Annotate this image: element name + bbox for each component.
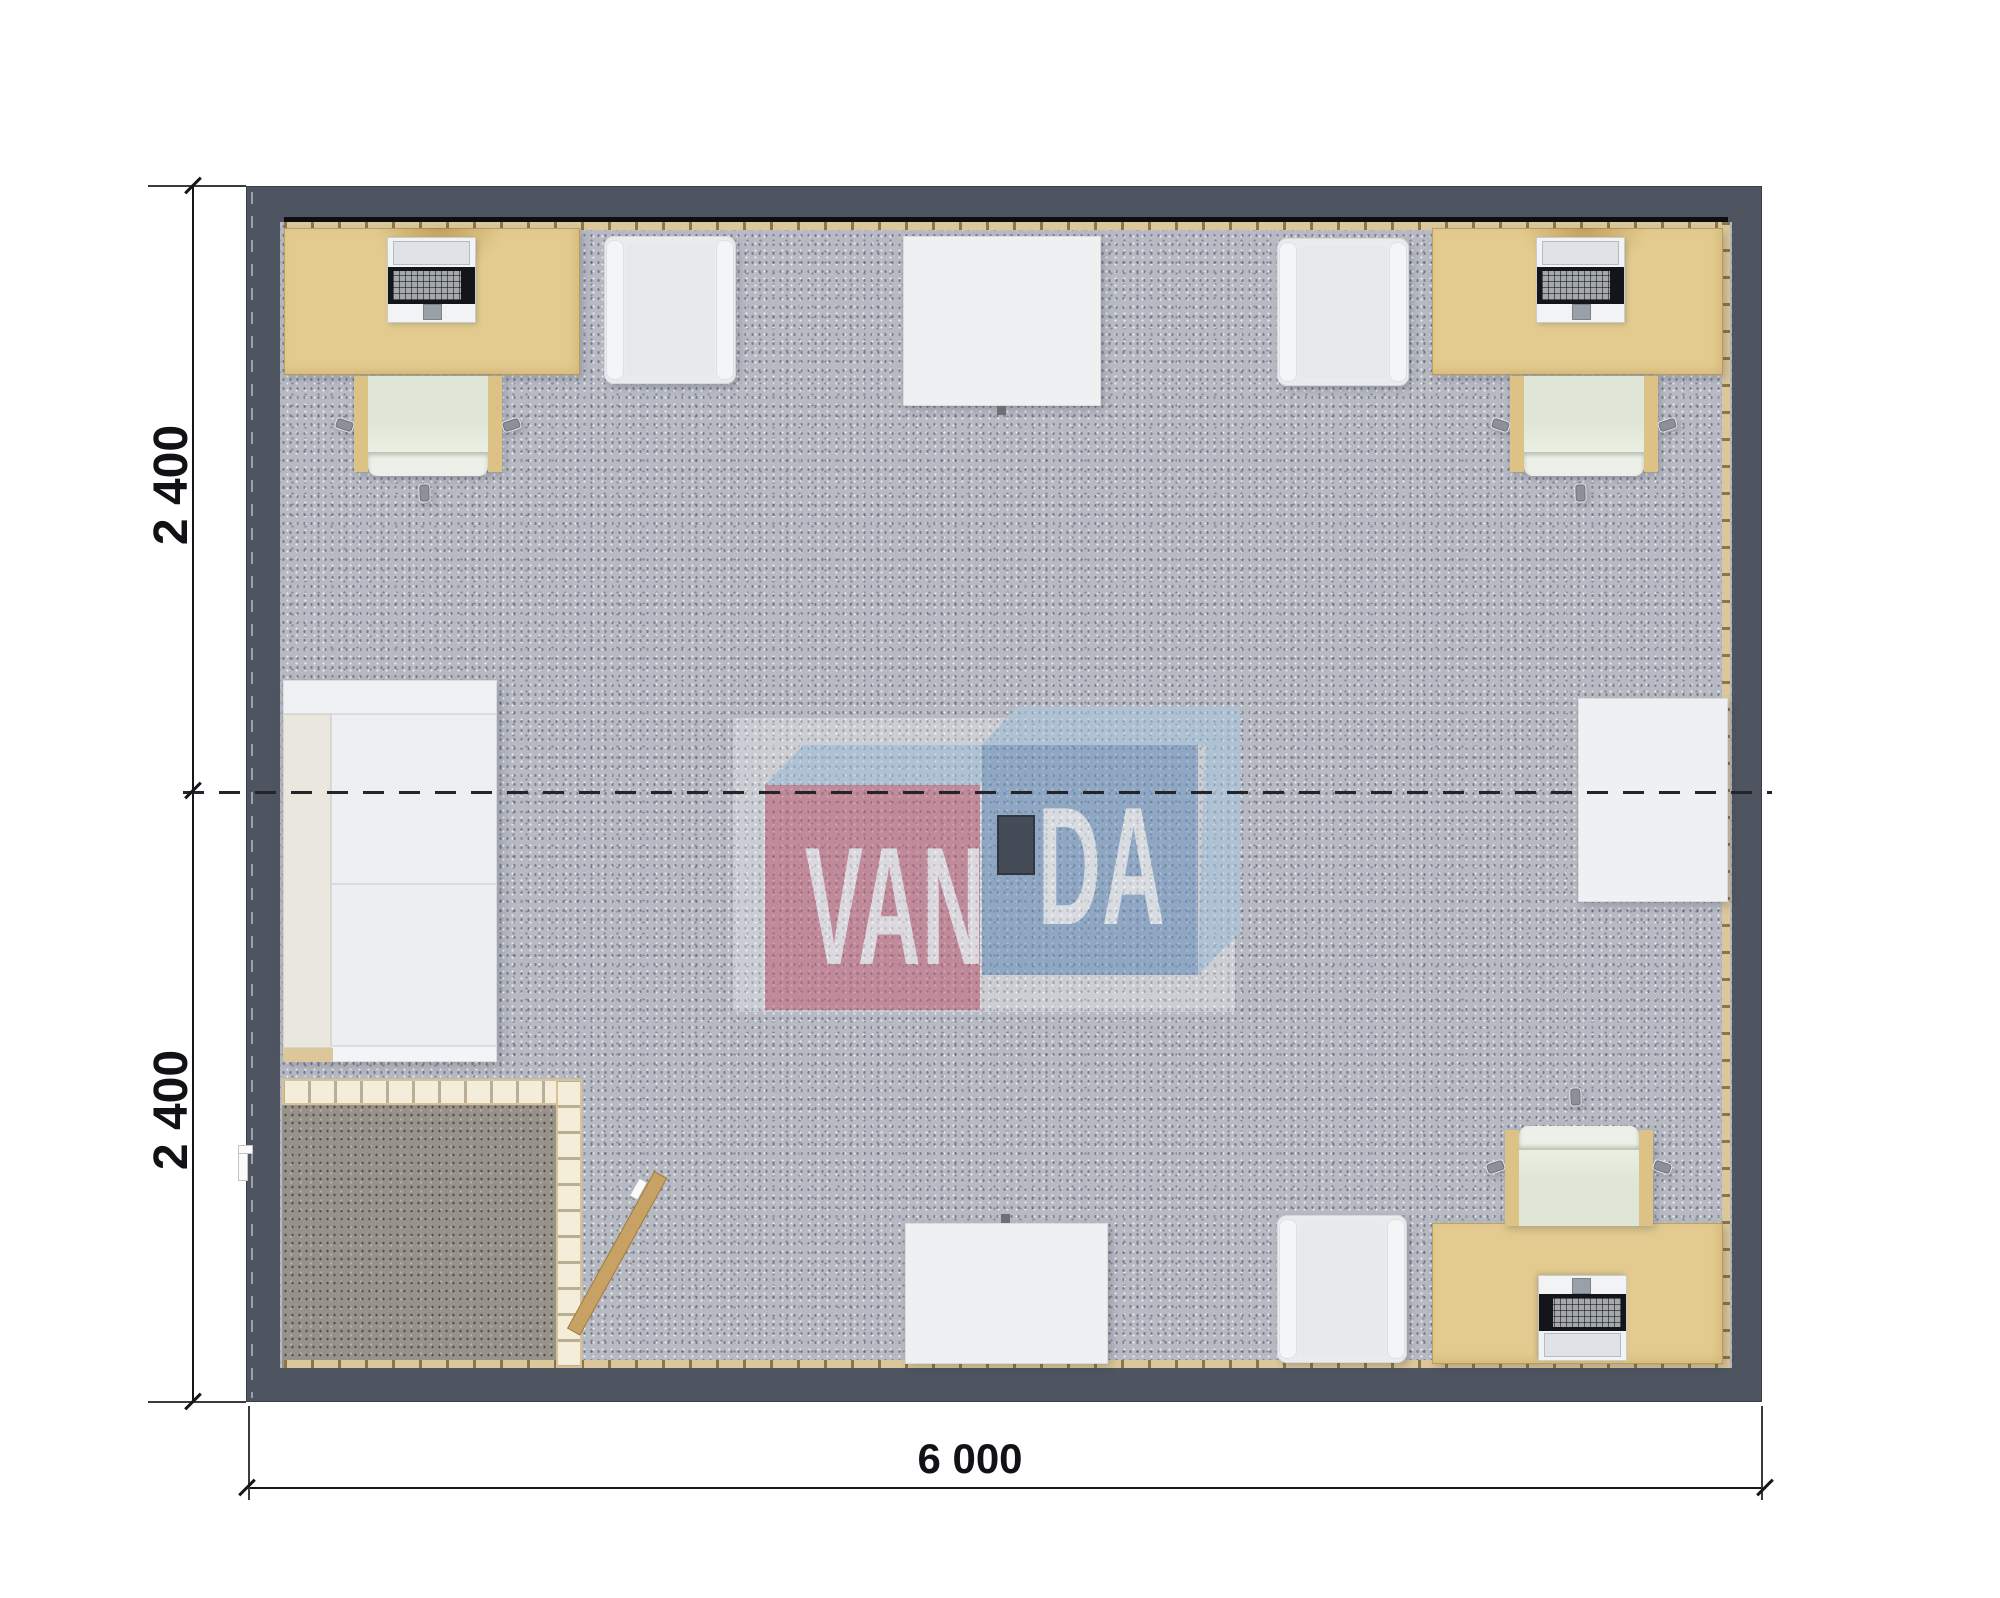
sofa-left — [283, 680, 497, 1062]
lounge-chair-bottom — [1277, 1215, 1407, 1363]
chair-seat — [1519, 1150, 1639, 1226]
module-joint-dashed-line — [183, 791, 1772, 794]
table-bottom — [905, 1223, 1108, 1364]
chair-armrest — [354, 376, 368, 472]
lounge-seat-pad — [1299, 1223, 1385, 1355]
chair-caster — [419, 484, 430, 501]
lounge-seat-pad — [1299, 246, 1387, 378]
chair-seat — [368, 376, 488, 452]
lounge-chair-top-right — [1277, 238, 1409, 386]
vestibule-carpet — [282, 1103, 556, 1368]
vestibule-partition-horizontal — [282, 1079, 578, 1105]
lounge-armrest — [1279, 1219, 1297, 1359]
entry-door-handle — [239, 1146, 247, 1180]
laptop-screen — [1544, 1333, 1621, 1357]
lounge-armrest — [1279, 242, 1297, 382]
left-dimension-line — [192, 186, 194, 1402]
chair-armrest — [1510, 376, 1524, 472]
laptop-keyboard — [1539, 1294, 1626, 1331]
laptop-top-right — [1537, 238, 1624, 322]
extension-line-top-left — [148, 185, 246, 187]
mouse — [423, 304, 442, 320]
task-chair-top-left — [352, 376, 504, 498]
sofa-front-edge — [331, 1046, 497, 1062]
sofa-cushion — [331, 714, 497, 884]
laptop-keys — [393, 271, 461, 300]
dimension-label-height-bottom: 2 400 — [148, 1010, 196, 1210]
laptop-keys — [1553, 1298, 1621, 1327]
lounge-armrest — [1389, 242, 1407, 382]
sofa-backrest — [283, 714, 331, 1048]
chair-caster — [1575, 484, 1586, 501]
laptop-top-left — [388, 238, 475, 322]
extension-line-bottom-left — [148, 1401, 246, 1403]
table-leg-mark — [997, 406, 1006, 415]
lounge-chair-top-left — [604, 236, 736, 384]
lounge-armrest — [716, 240, 734, 380]
chair-seat — [1524, 376, 1644, 452]
lounge-armrest — [1387, 1219, 1405, 1359]
ceiling-projector — [997, 815, 1035, 875]
laptop-screen — [393, 241, 470, 265]
chair-backrest — [368, 452, 488, 476]
laptop-screen — [1542, 241, 1619, 265]
laptop-keyboard — [1537, 267, 1624, 304]
sofa-armrest — [283, 680, 497, 714]
table-right — [1578, 698, 1728, 902]
chair-armrest — [488, 376, 502, 472]
task-chair-bottom-right — [1503, 1104, 1655, 1226]
chair-backrest — [1524, 452, 1644, 476]
mouse — [1572, 304, 1591, 320]
dimension-label-width: 6 000 — [820, 1438, 1120, 1480]
chair-caster — [1570, 1088, 1581, 1105]
roof-overhang-dashed-line — [251, 192, 253, 1398]
table-top — [903, 236, 1101, 406]
chair-armrest — [1644, 376, 1658, 472]
task-chair-top-right — [1508, 376, 1660, 498]
computer-bottom-right — [1539, 1276, 1626, 1360]
sofa-cushion — [331, 884, 497, 1046]
dimension-label-height-top: 2 400 — [148, 385, 196, 585]
sofa-wood-base — [283, 1048, 333, 1062]
laptop-keys — [1542, 271, 1610, 300]
lounge-armrest — [606, 240, 624, 380]
laptop-keyboard — [388, 267, 475, 304]
chair-backrest — [1519, 1126, 1639, 1150]
mouse — [1572, 1278, 1591, 1294]
chair-armrest — [1639, 1130, 1653, 1226]
floor-plan-canvas: VAN DA 2 400 2 400 6 000 — [0, 0, 2000, 1598]
chair-armrest — [1505, 1130, 1519, 1226]
lounge-seat-pad — [626, 244, 714, 376]
table-leg-mark — [1001, 1214, 1010, 1223]
bottom-dimension-line — [246, 1487, 1766, 1489]
